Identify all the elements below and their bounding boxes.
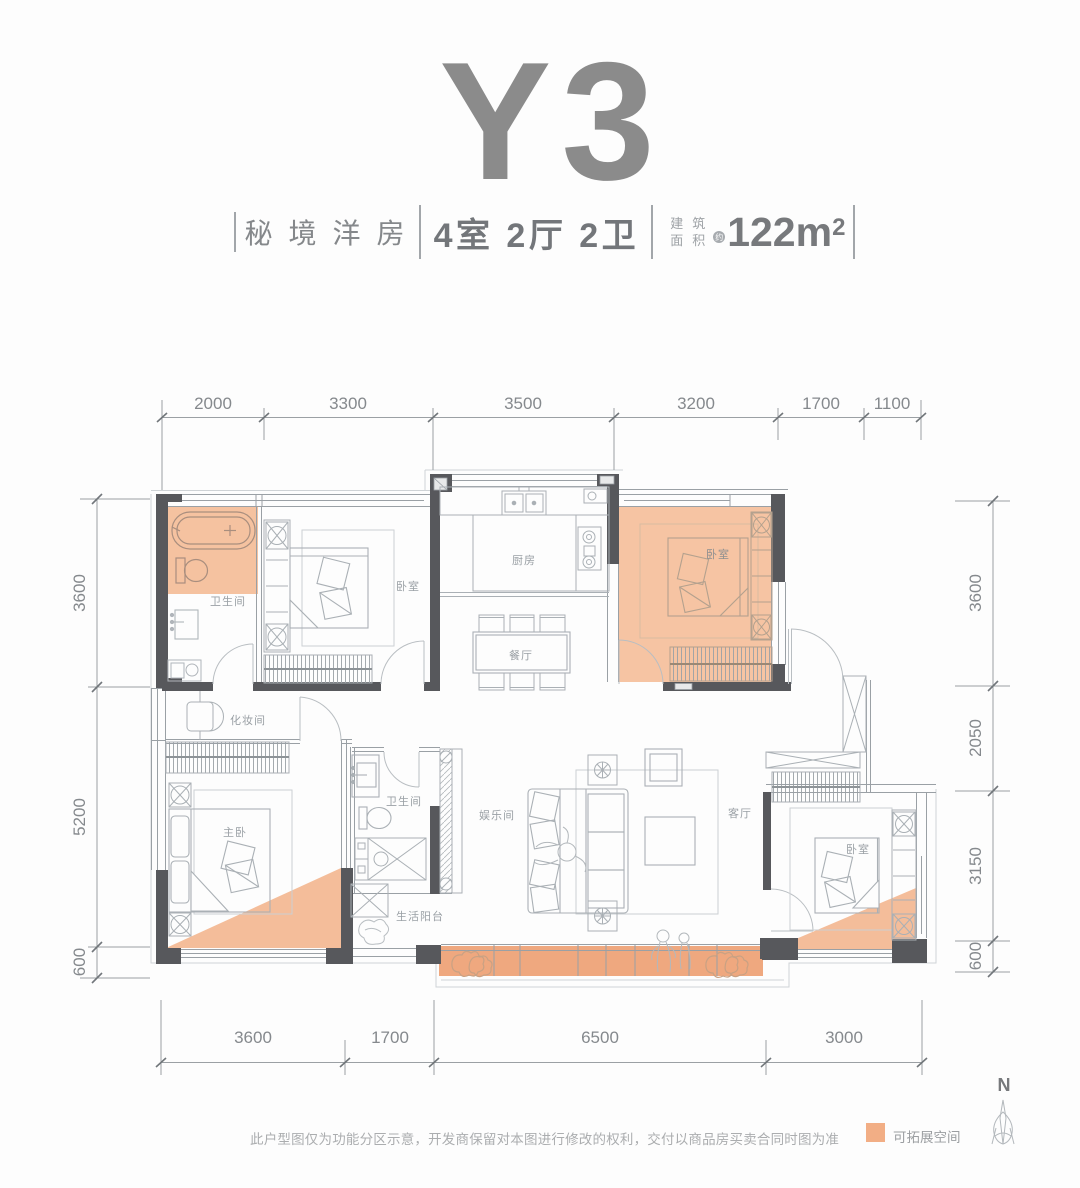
svg-text:3300: 3300 (329, 394, 367, 413)
svg-text:卧室: 卧室 (846, 842, 870, 856)
svg-text:卫生间: 卫生间 (210, 594, 246, 608)
svg-text:卫生间: 卫生间 (386, 794, 422, 808)
svg-text:3600: 3600 (966, 574, 985, 612)
svg-text:2050: 2050 (966, 719, 985, 757)
svg-text:卧室: 卧室 (396, 579, 420, 593)
svg-text:3200: 3200 (677, 394, 715, 413)
svg-text:1100: 1100 (874, 394, 911, 413)
svg-text:3600: 3600 (234, 1028, 272, 1047)
svg-text:3150: 3150 (966, 847, 985, 885)
svg-text:3600: 3600 (70, 574, 89, 612)
svg-text:卧室: 卧室 (706, 547, 730, 561)
svg-text:6500: 6500 (581, 1028, 619, 1047)
svg-text:餐厅: 餐厅 (509, 648, 533, 662)
svg-text:1700: 1700 (371, 1028, 409, 1047)
svg-text:主卧: 主卧 (223, 826, 247, 839)
svg-text:1700: 1700 (802, 394, 840, 413)
svg-text:2000: 2000 (194, 394, 232, 413)
svg-text:3500: 3500 (504, 394, 542, 413)
svg-text:600: 600 (966, 942, 985, 970)
svg-text:化妆间: 化妆间 (230, 713, 266, 727)
svg-text:3000: 3000 (825, 1028, 863, 1047)
svg-text:N: N (998, 1075, 1011, 1095)
svg-text:娱乐间: 娱乐间 (479, 808, 515, 822)
svg-text:600: 600 (70, 948, 89, 976)
svg-text:客厅: 客厅 (728, 806, 752, 820)
svg-text:厨房: 厨房 (512, 554, 536, 567)
svg-text:生活阳台: 生活阳台 (396, 909, 444, 923)
svg-text:5200: 5200 (70, 798, 89, 836)
